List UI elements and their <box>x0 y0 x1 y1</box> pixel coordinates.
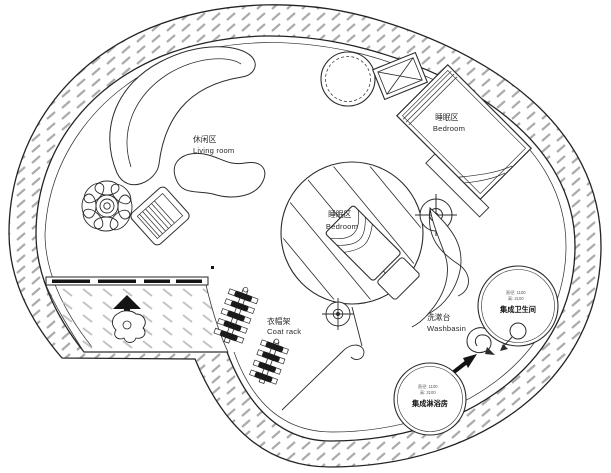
lounge-chair <box>129 185 191 247</box>
coat-rack-item <box>248 334 290 387</box>
window-pane <box>98 280 136 284</box>
floor-plan-canvas: 睡眠区 Bedroom 睡眠区 Bedroom <box>0 0 611 473</box>
coffee-table <box>174 153 265 196</box>
floor-plan-svg: 睡眠区 Bedroom 睡眠区 Bedroom <box>0 0 611 473</box>
wall-dot <box>211 266 214 269</box>
hook-line <box>343 345 364 359</box>
round-table <box>321 52 375 106</box>
living-room-label: 休闲区 Living room <box>193 129 234 155</box>
window-wall <box>46 277 208 285</box>
window-pane <box>144 280 170 284</box>
coat-rack-label: 衣帽架 Coat rack <box>267 311 301 336</box>
window-pane <box>52 280 90 284</box>
shower-pod: 直径: 1100 高: 2100 集成淋浴房 <box>394 363 466 435</box>
window-pane <box>176 280 202 284</box>
plant-icon <box>80 180 135 234</box>
